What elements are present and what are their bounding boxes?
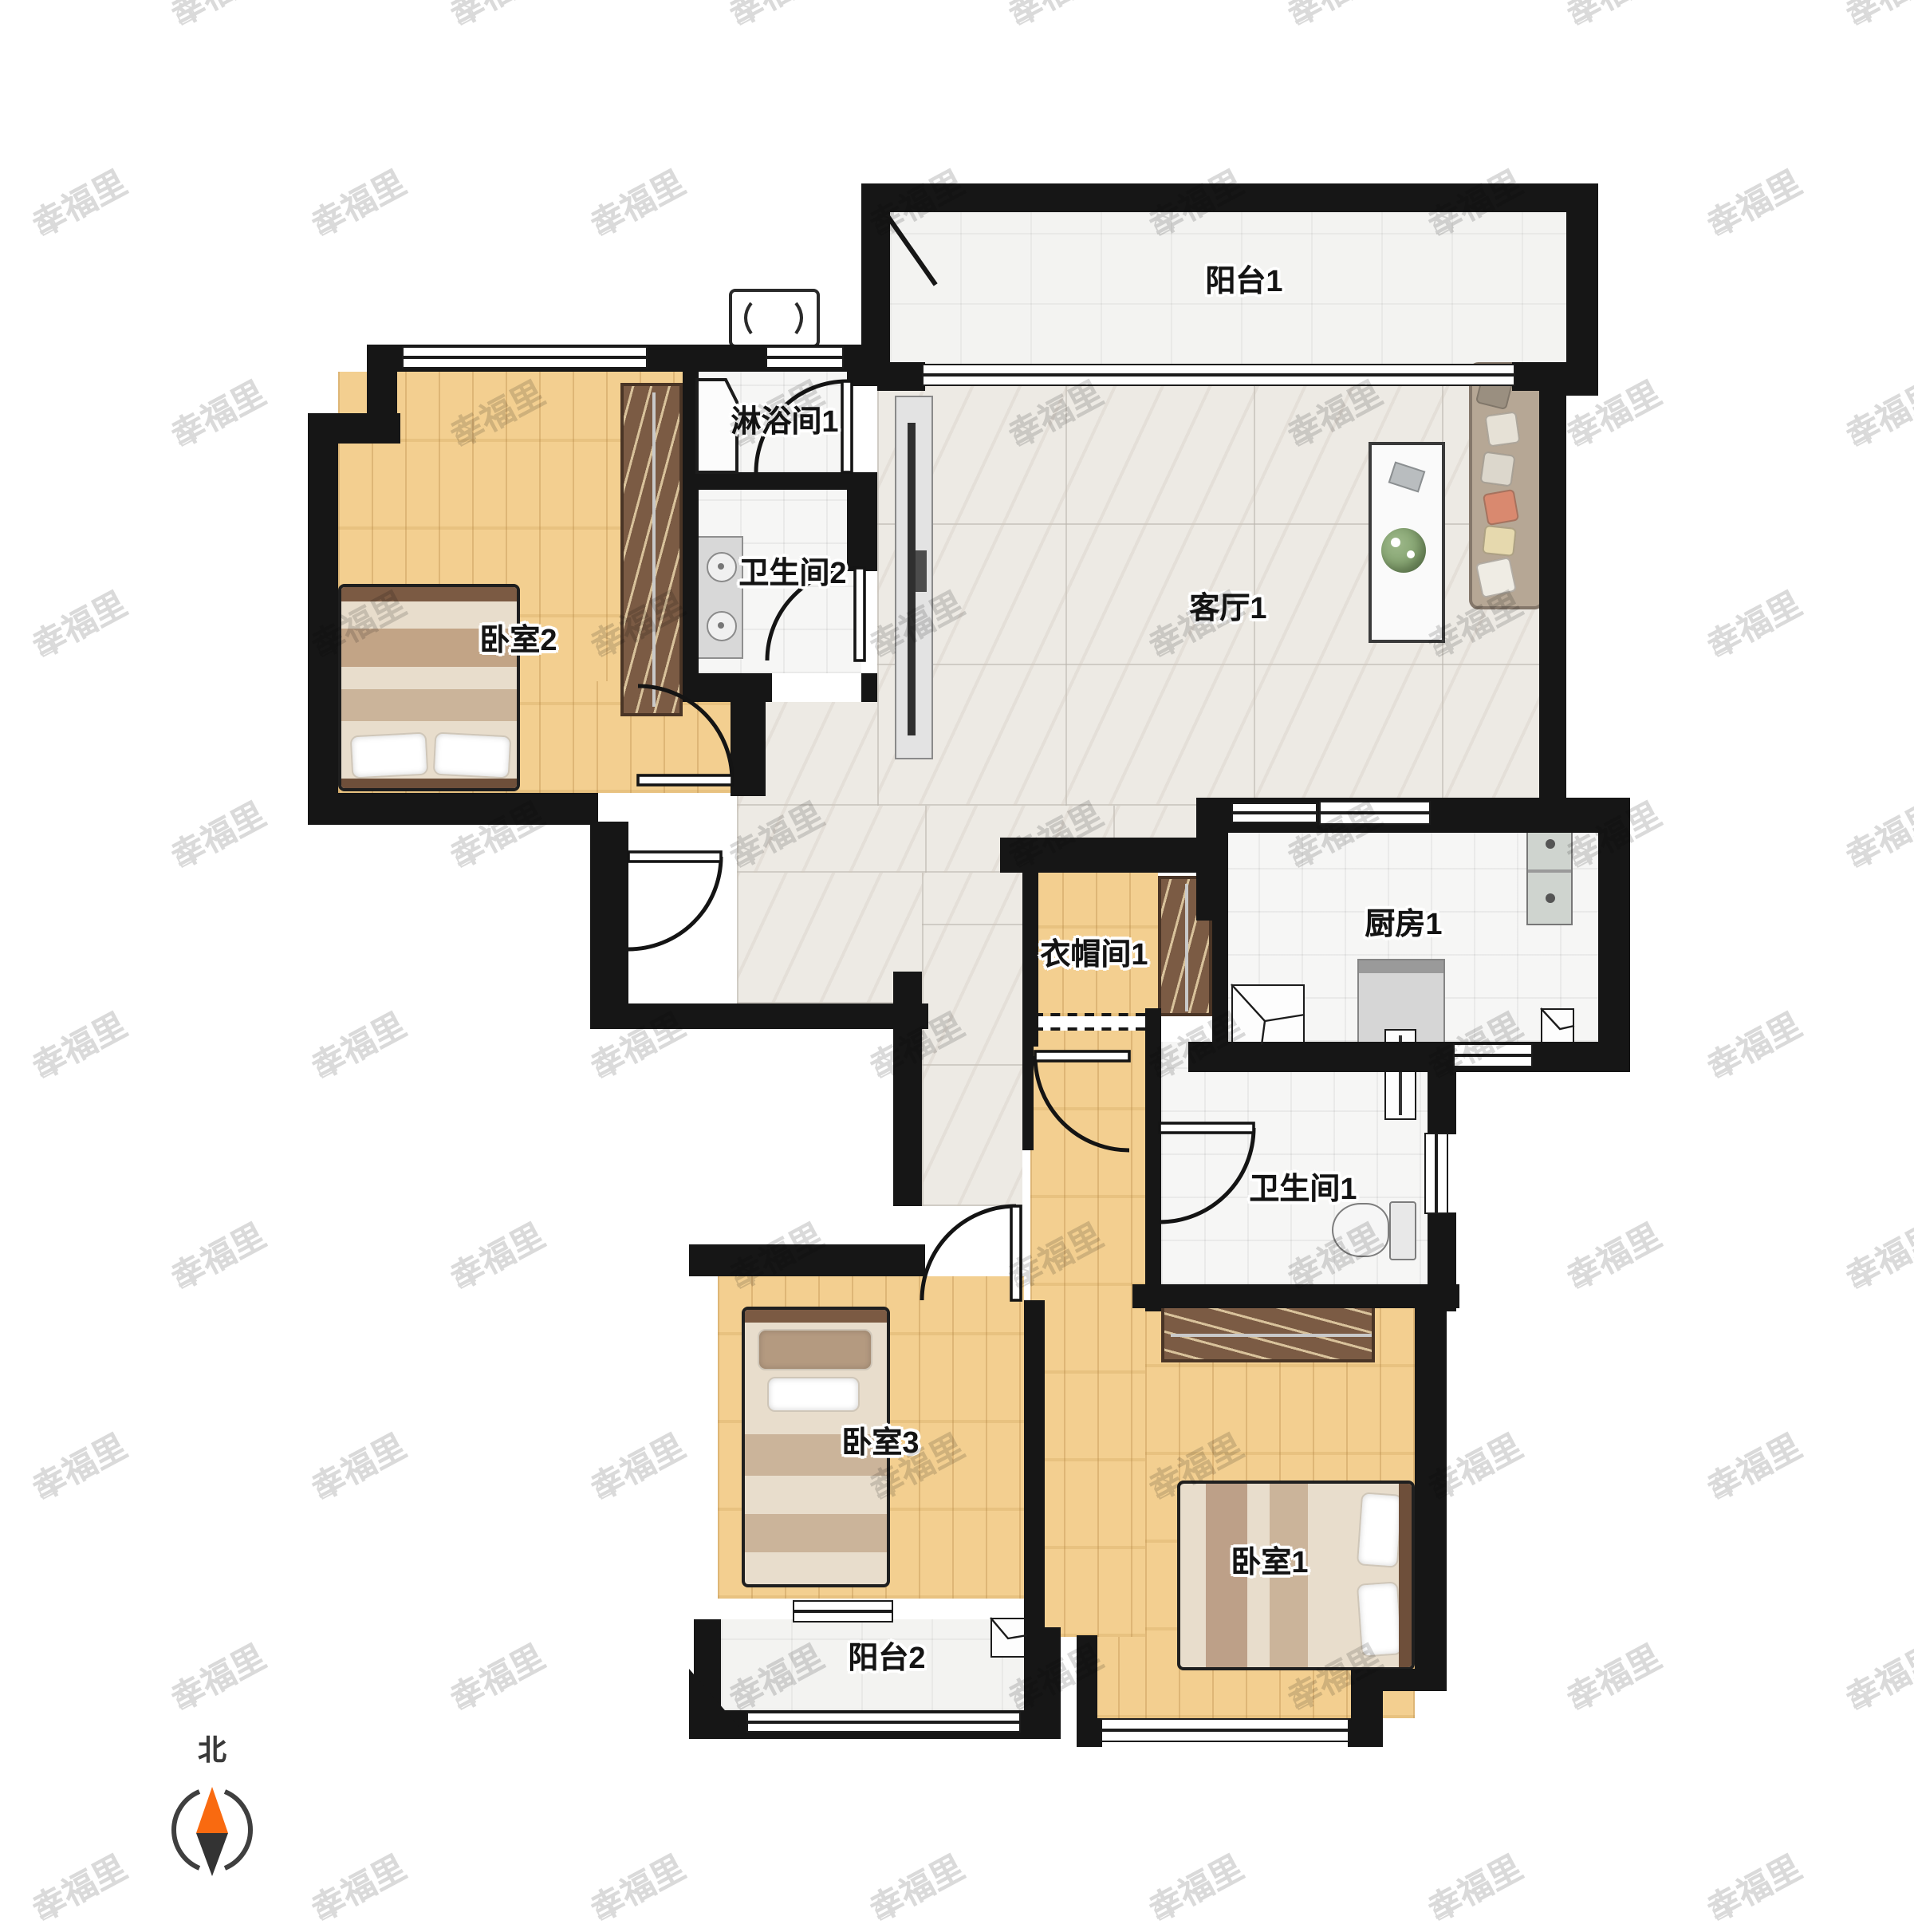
room-label-bedroom-3: 卧室3 [841,1419,919,1462]
room-label-bedroom-1: 卧室1 [1231,1539,1308,1582]
room-label-balcony-2: 阳台2 [848,1634,925,1678]
door-arc-bedroom-2 [638,686,732,780]
room-label-bathroom-1: 卫生间1 [1249,1165,1357,1208]
room-label-cloakroom-1: 衣帽间1 [1040,931,1148,974]
room-label-bedroom-2: 卧室2 [479,617,557,660]
door-arcs [628,381,1254,1300]
room-label-shower-1: 淋浴间1 [731,398,838,441]
floor-plan: 阳台1 淋浴间1 卫生间2 卧室2 客厅1 厨房1 衣帽间1 卫生间1 卧室3 … [0,0,1914,1914]
room-label-bathroom-2: 卫生间2 [738,550,846,593]
compass-icon [152,1768,279,1895]
washing-machine-icon [746,303,801,333]
door-leaf [1035,1051,1129,1061]
doors-and-details [0,0,1914,1914]
door-leaf [1160,1123,1254,1133]
door-leaf [638,775,732,785]
room-label-kitchen-1: 厨房1 [1365,901,1442,944]
door-arc-bathroom-1 [1160,1128,1254,1222]
door-leaf [628,852,721,862]
compass-north-label: 北 [198,1728,226,1769]
door-arc-entrance [628,857,721,949]
door-arc-bedroom-3 [922,1206,1016,1300]
room-label-living-1: 客厅1 [1189,585,1266,628]
door-arc-corridor [1035,1056,1129,1150]
door-leaves [628,381,1254,1300]
door-leaf [855,568,864,660]
door-leaf [842,381,852,472]
door-leaf [1011,1206,1021,1300]
room-label-balcony-1: 阳台1 [1205,258,1282,301]
